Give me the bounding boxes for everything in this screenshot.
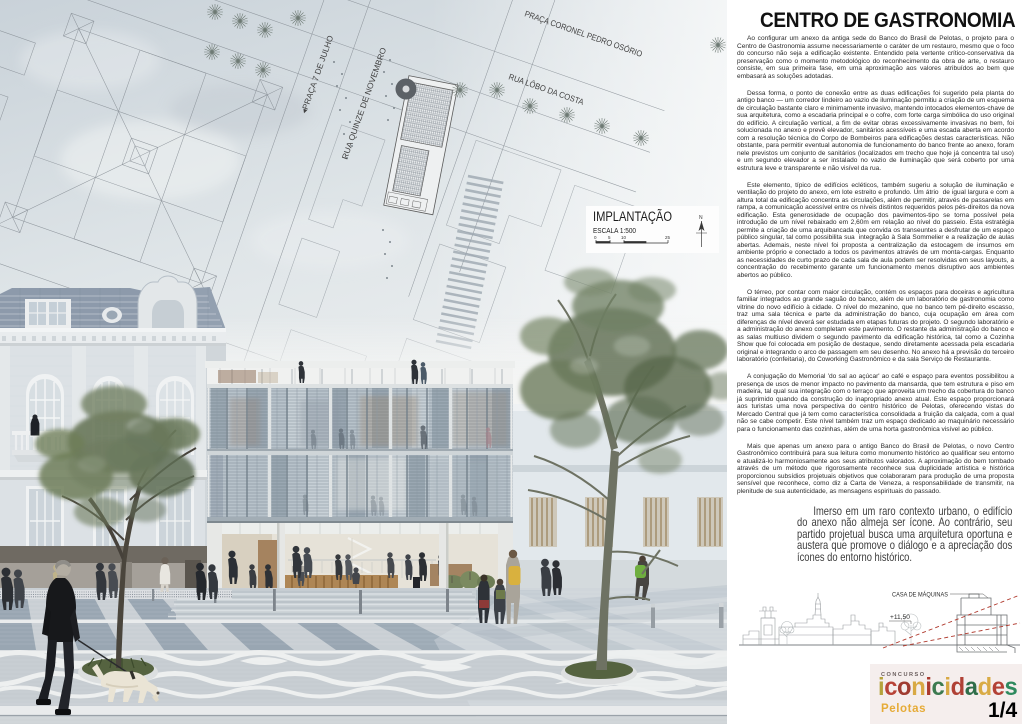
svg-text:+11,50: +11,50 bbox=[890, 614, 910, 621]
svg-text:ESCALA 1:500: ESCALA 1:500 bbox=[593, 226, 636, 235]
svg-text:25: 25 bbox=[665, 235, 671, 240]
svg-text:10: 10 bbox=[621, 235, 627, 240]
svg-text:N: N bbox=[699, 215, 703, 221]
svg-text:CASA DE MÁQUINAS: CASA DE MÁQUINAS bbox=[892, 590, 949, 599]
svg-text:IMPLANTAÇÃO: IMPLANTAÇÃO bbox=[593, 209, 672, 224]
